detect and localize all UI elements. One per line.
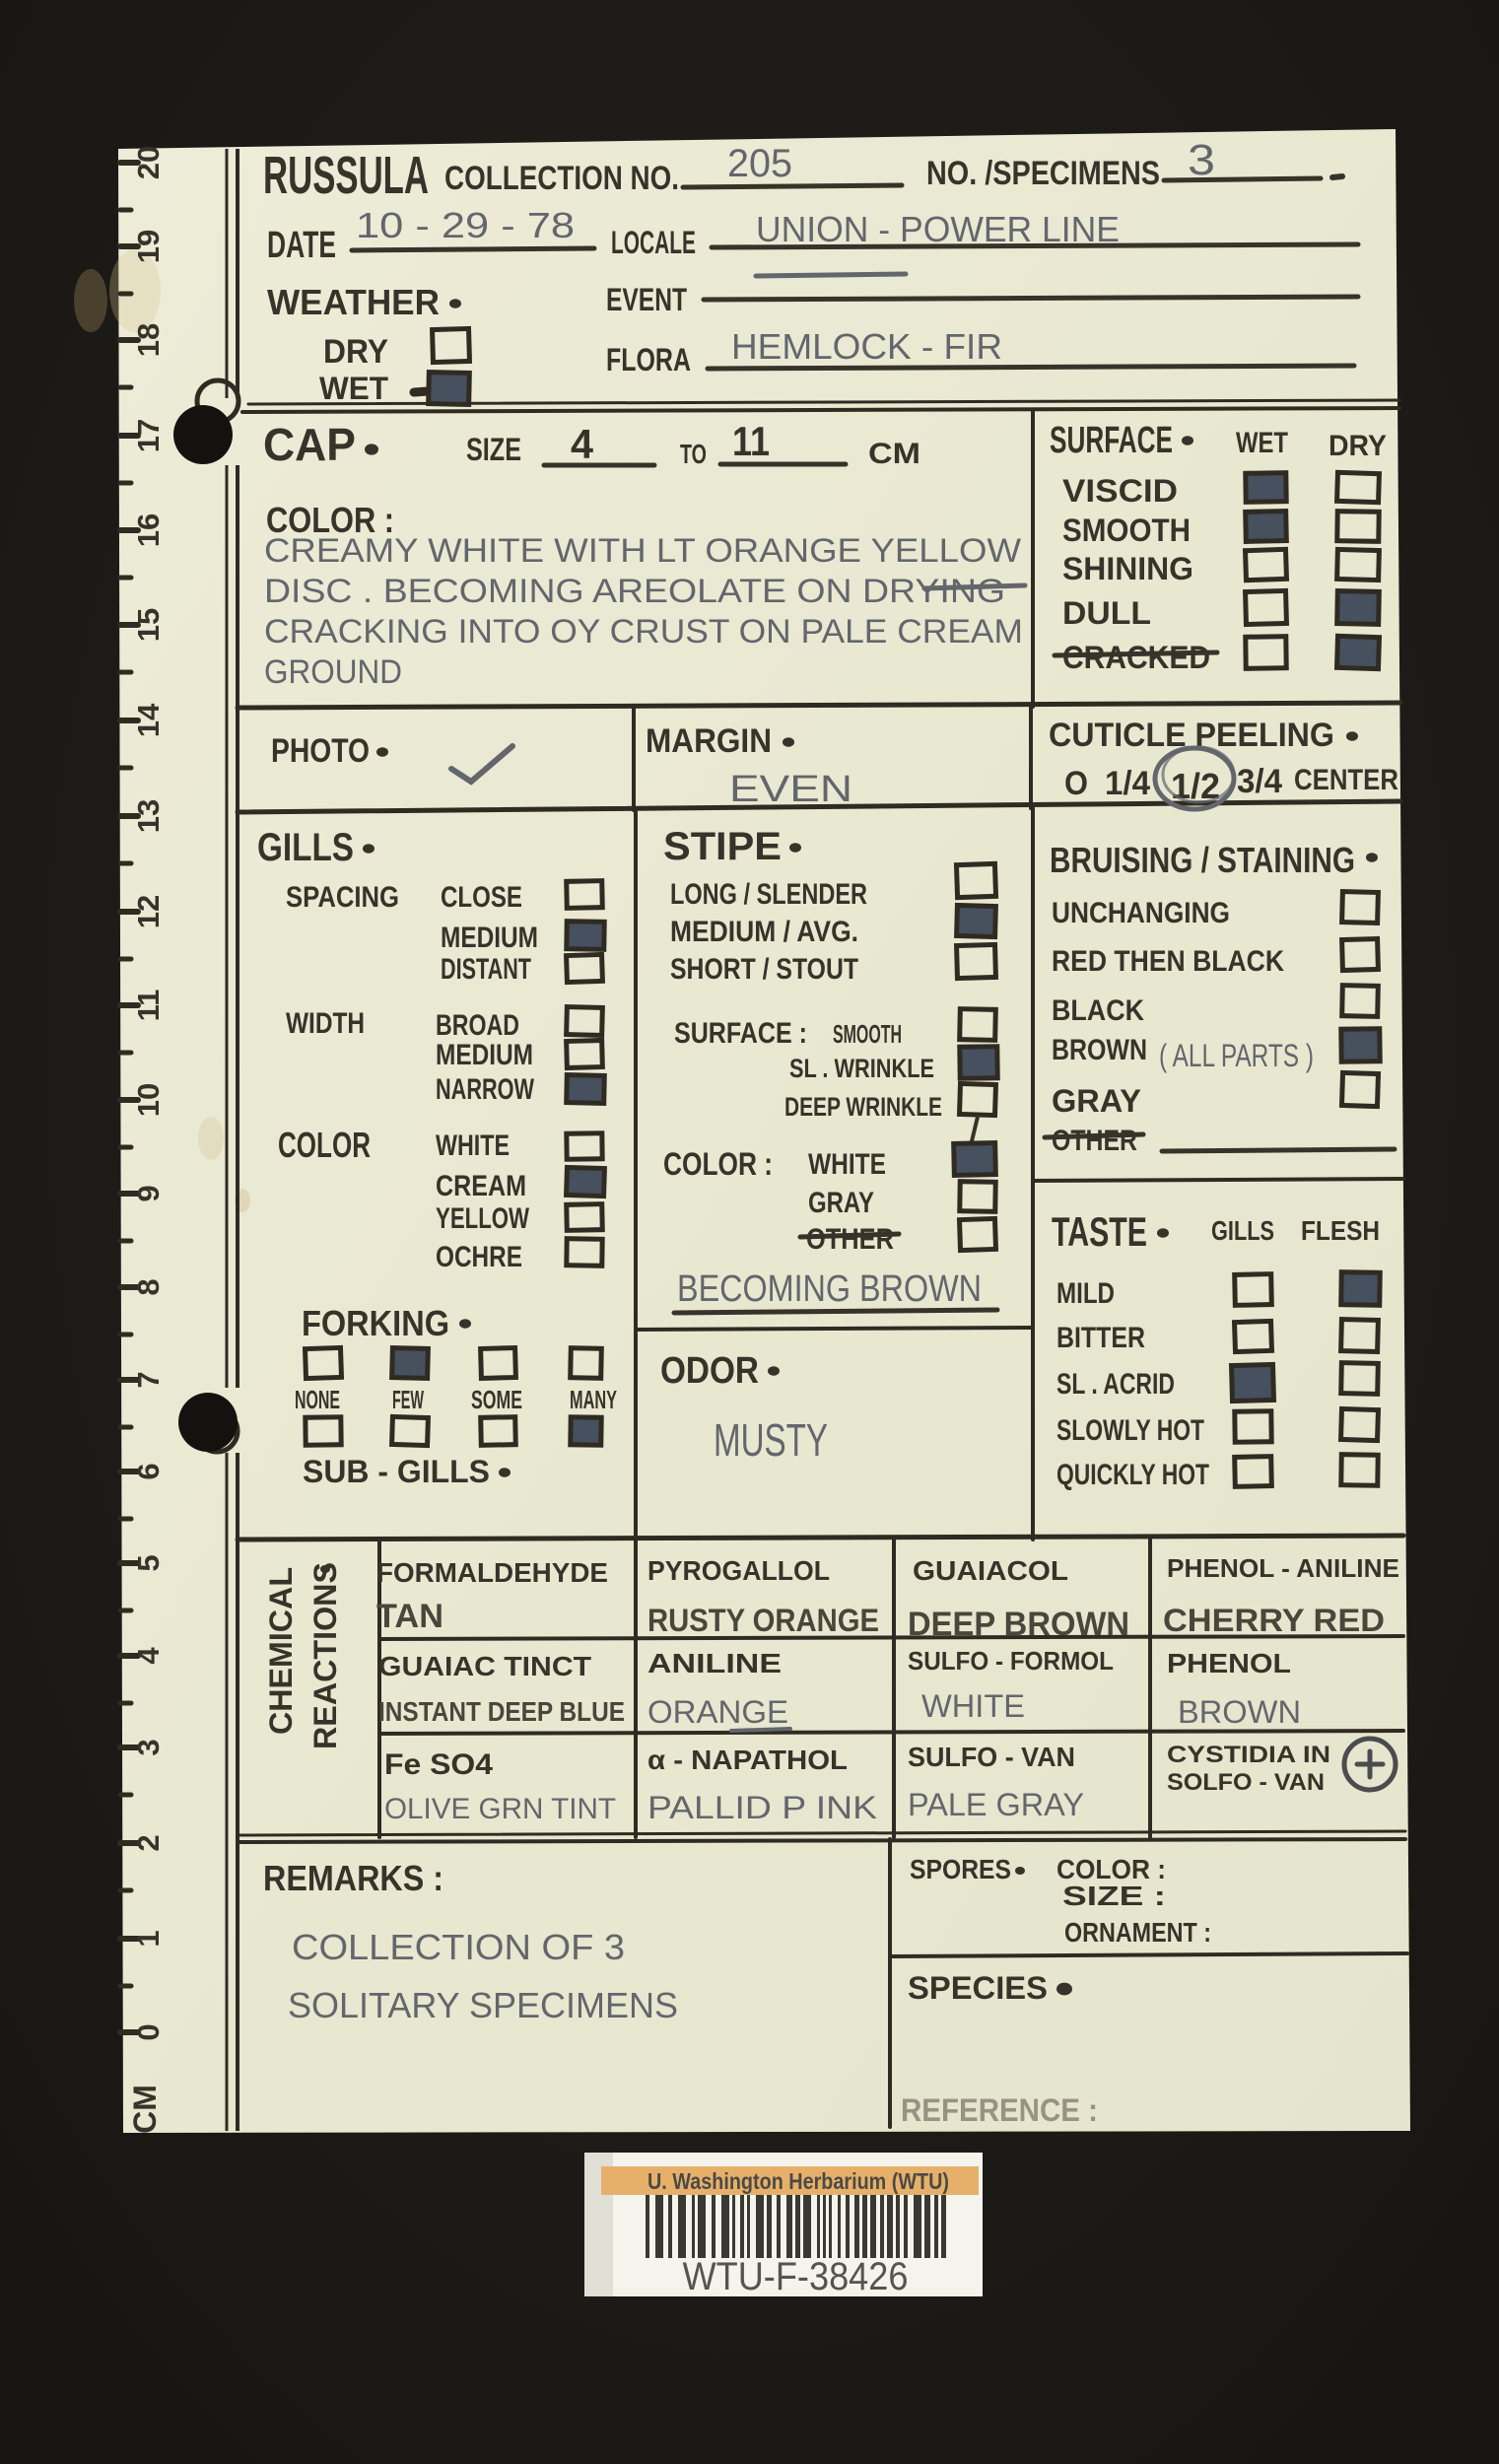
svg-text:BLACK: BLACK bbox=[1052, 994, 1144, 1027]
svg-text:BRUISING / STAINING: BRUISING / STAINING bbox=[1050, 840, 1355, 880]
svg-text:PHENOL: PHENOL bbox=[1167, 1648, 1291, 1678]
svg-text:SOME: SOME bbox=[471, 1385, 522, 1414]
svg-text:1/4: 1/4 bbox=[1105, 765, 1150, 802]
svg-text:ORANGE: ORANGE bbox=[647, 1694, 788, 1730]
svg-text:PHENOL - ANILINE: PHENOL - ANILINE bbox=[1167, 1553, 1399, 1583]
svg-text:EVEN: EVEN bbox=[729, 769, 852, 810]
svg-text:WET: WET bbox=[1236, 427, 1288, 459]
svg-text:MILD: MILD bbox=[1056, 1277, 1115, 1310]
svg-text:GRAY: GRAY bbox=[1052, 1083, 1141, 1119]
svg-text:SULFO - FORMOL: SULFO - FORMOL bbox=[908, 1646, 1114, 1676]
svg-text:DISTANT: DISTANT bbox=[441, 953, 531, 986]
svg-text:O: O bbox=[1064, 765, 1088, 802]
svg-text:DRY: DRY bbox=[1329, 430, 1387, 462]
svg-text:MEDIUM: MEDIUM bbox=[436, 1039, 533, 1071]
svg-text:12: 12 bbox=[131, 895, 166, 928]
svg-text:17: 17 bbox=[131, 419, 166, 452]
svg-text:2: 2 bbox=[131, 1834, 166, 1851]
svg-text:BECOMING BROWN: BECOMING BROWN bbox=[677, 1268, 982, 1310]
svg-text:OLIVE GRN TINT: OLIVE GRN TINT bbox=[384, 1793, 616, 1825]
svg-text:SPECIES: SPECIES bbox=[908, 1970, 1048, 2006]
svg-text:GUAIACOL: GUAIACOL bbox=[913, 1555, 1068, 1586]
svg-text:SIZE: SIZE bbox=[466, 432, 521, 467]
svg-text:NO. /SPECIMENS: NO. /SPECIMENS bbox=[926, 155, 1160, 192]
svg-text:16: 16 bbox=[131, 513, 166, 547]
svg-text:ANILINE: ANILINE bbox=[647, 1648, 782, 1678]
svg-text:SOLITARY SPECIMENS: SOLITARY SPECIMENS bbox=[288, 1985, 678, 2025]
svg-text:NARROW: NARROW bbox=[436, 1073, 534, 1106]
svg-text:SPORES: SPORES bbox=[910, 1854, 1011, 1884]
svg-text:CHEMICAL: CHEMICAL bbox=[263, 1567, 299, 1735]
svg-text:WIDTH: WIDTH bbox=[286, 1007, 365, 1040]
svg-text:5: 5 bbox=[131, 1554, 166, 1571]
svg-text:ORNAMENT :: ORNAMENT : bbox=[1064, 1917, 1211, 1948]
svg-text:3: 3 bbox=[131, 1739, 166, 1755]
svg-text:CHERRY RED: CHERRY RED bbox=[1163, 1603, 1385, 1638]
svg-text:SPACING: SPACING bbox=[286, 881, 399, 914]
svg-text:SUB - GILLS: SUB - GILLS bbox=[303, 1454, 490, 1489]
svg-text:3/4: 3/4 bbox=[1237, 763, 1282, 800]
svg-text:GILLS: GILLS bbox=[1211, 1215, 1274, 1246]
svg-text:DRY: DRY bbox=[323, 333, 388, 371]
svg-text:RUSSULA: RUSSULA bbox=[263, 146, 429, 205]
svg-text:4: 4 bbox=[131, 1647, 166, 1665]
svg-text:3: 3 bbox=[1188, 136, 1215, 184]
svg-text:8: 8 bbox=[131, 1278, 166, 1295]
svg-text:CM: CM bbox=[127, 2085, 163, 2134]
svg-text:( ALL PARTS ): ( ALL PARTS ) bbox=[1159, 1038, 1314, 1073]
svg-text:GRAY: GRAY bbox=[808, 1187, 874, 1219]
svg-text:GUAIAC TINCT: GUAIAC TINCT bbox=[378, 1651, 591, 1681]
svg-text:U. Washington Herbarium (WTU): U. Washington Herbarium (WTU) bbox=[647, 2168, 949, 2194]
svg-text:20: 20 bbox=[131, 146, 166, 179]
svg-text:COLOR :: COLOR : bbox=[663, 1146, 773, 1182]
svg-text:SL . WRINKLE: SL . WRINKLE bbox=[789, 1054, 934, 1083]
svg-text:15: 15 bbox=[131, 608, 166, 642]
svg-text:SURFACE: SURFACE bbox=[1050, 420, 1173, 461]
svg-text:1: 1 bbox=[131, 1930, 166, 1947]
svg-text:COLOR: COLOR bbox=[278, 1125, 371, 1165]
svg-text:MANY: MANY bbox=[570, 1385, 617, 1414]
svg-text:CLOSE: CLOSE bbox=[441, 881, 522, 914]
svg-text:0: 0 bbox=[131, 2023, 166, 2040]
svg-text:MARGIN: MARGIN bbox=[646, 722, 772, 760]
svg-text:CREAM: CREAM bbox=[436, 1170, 526, 1202]
svg-text:COLLECTION OF 3: COLLECTION OF 3 bbox=[292, 1927, 625, 1967]
svg-text:CREAMY WHITE WITH LT ORANGE YE: CREAMY WHITE WITH LT ORANGE YELLOW bbox=[264, 532, 1021, 570]
svg-text:WHITE: WHITE bbox=[436, 1129, 510, 1162]
svg-text:PHOTO: PHOTO bbox=[271, 732, 370, 770]
svg-text:TASTE: TASTE bbox=[1052, 1208, 1147, 1255]
svg-text:CAP: CAP bbox=[263, 419, 356, 470]
svg-text:7: 7 bbox=[131, 1371, 166, 1388]
svg-text:MEDIUM: MEDIUM bbox=[441, 922, 538, 954]
svg-text:SOLFO - VAN: SOLFO - VAN bbox=[1167, 1769, 1325, 1796]
svg-text:FEW: FEW bbox=[392, 1385, 424, 1414]
svg-text:GROUND: GROUND bbox=[264, 653, 402, 691]
svg-text:BROWN: BROWN bbox=[1178, 1694, 1301, 1730]
svg-text:DISC . BECOMING AREOLATE ON D: DISC . BECOMING AREOLATE ON DRYING bbox=[264, 573, 1005, 610]
svg-text:LOCALE: LOCALE bbox=[611, 225, 696, 260]
svg-text:CM: CM bbox=[868, 438, 920, 470]
svg-text:4: 4 bbox=[571, 421, 594, 467]
svg-text:WET: WET bbox=[319, 371, 388, 406]
svg-text:PALE GRAY: PALE GRAY bbox=[908, 1787, 1084, 1822]
svg-text:CENTER: CENTER bbox=[1294, 764, 1398, 796]
svg-text:RED THEN BLACK: RED THEN BLACK bbox=[1052, 945, 1284, 978]
svg-text:OTHER: OTHER bbox=[806, 1223, 894, 1256]
svg-text:WEATHER: WEATHER bbox=[267, 282, 440, 322]
svg-text:DATE: DATE bbox=[267, 225, 336, 266]
svg-text:PALLID P INK: PALLID P INK bbox=[647, 1790, 877, 1825]
svg-text:SMOOTH: SMOOTH bbox=[1062, 513, 1191, 548]
svg-text:FLESH: FLESH bbox=[1301, 1215, 1380, 1246]
svg-text:NONE: NONE bbox=[295, 1385, 340, 1414]
svg-text:9: 9 bbox=[131, 1185, 166, 1201]
svg-text:10 - 29 - 78: 10 - 29 - 78 bbox=[356, 205, 575, 245]
svg-text:HEMLOCK - FIR: HEMLOCK - FIR bbox=[731, 326, 1002, 367]
svg-text:GILLS: GILLS bbox=[257, 826, 354, 869]
svg-text:13: 13 bbox=[131, 799, 166, 833]
svg-text:SULFO - VAN: SULFO - VAN bbox=[908, 1742, 1075, 1772]
svg-text:REFERENCE :: REFERENCE : bbox=[901, 2092, 1098, 2128]
svg-text:INSTANT DEEP BLUE: INSTANT DEEP BLUE bbox=[378, 1696, 625, 1727]
svg-text:SHINING: SHINING bbox=[1062, 551, 1193, 586]
svg-text:OTHER: OTHER bbox=[1052, 1125, 1137, 1157]
svg-text:DEEP WRINKLE: DEEP WRINKLE bbox=[784, 1092, 942, 1122]
svg-text:REMARKS :: REMARKS : bbox=[263, 1858, 443, 1898]
svg-text:MUSTY: MUSTY bbox=[714, 1414, 828, 1466]
svg-text:YELLOW: YELLOW bbox=[436, 1202, 530, 1235]
svg-text:α - NAPATHOL: α - NAPATHOL bbox=[647, 1745, 848, 1775]
svg-text:DEEP BROWN: DEEP BROWN bbox=[908, 1606, 1129, 1643]
svg-text:TAN: TAN bbox=[376, 1598, 443, 1635]
svg-text:UNCHANGING: UNCHANGING bbox=[1052, 897, 1230, 929]
svg-text:BROWN: BROWN bbox=[1052, 1034, 1147, 1066]
svg-text:CYSTIDIA IN: CYSTIDIA IN bbox=[1167, 1742, 1330, 1768]
svg-text:BITTER: BITTER bbox=[1056, 1322, 1145, 1354]
svg-text:10: 10 bbox=[131, 1083, 166, 1117]
svg-text:SMOOTH: SMOOTH bbox=[833, 1019, 902, 1049]
svg-text:STIPE: STIPE bbox=[663, 825, 782, 868]
svg-text:6: 6 bbox=[131, 1463, 166, 1479]
svg-text:SLOWLY HOT: SLOWLY HOT bbox=[1056, 1414, 1204, 1447]
svg-text:205: 205 bbox=[727, 142, 792, 185]
svg-text:ODOR: ODOR bbox=[660, 1350, 759, 1392]
svg-text:FLORA: FLORA bbox=[606, 342, 691, 377]
svg-text:FORMALDEHYDE: FORMALDEHYDE bbox=[376, 1557, 608, 1588]
svg-text:QUICKLY HOT: QUICKLY HOT bbox=[1056, 1459, 1209, 1491]
svg-text:BROAD: BROAD bbox=[436, 1009, 519, 1042]
svg-text:PYROGALLOL: PYROGALLOL bbox=[647, 1555, 830, 1586]
svg-text:11: 11 bbox=[131, 990, 166, 1022]
svg-text:COLLECTION NO.: COLLECTION NO. bbox=[444, 160, 679, 197]
svg-text:VISCID: VISCID bbox=[1062, 473, 1178, 509]
svg-text:LONG / SLENDER: LONG / SLENDER bbox=[670, 878, 867, 911]
svg-text:UNION - POWER LINE: UNION - POWER LINE bbox=[756, 209, 1120, 249]
svg-text:18: 18 bbox=[131, 323, 166, 357]
svg-text:WHITE: WHITE bbox=[808, 1148, 886, 1181]
svg-text:Fe SO4: Fe SO4 bbox=[384, 1748, 493, 1781]
svg-text:CRACKING INTO OY CRUST ON PALE: CRACKING INTO OY CRUST ON PALE CREAM bbox=[264, 613, 1023, 650]
svg-text:WHITE: WHITE bbox=[921, 1688, 1025, 1724]
svg-text:FORKING: FORKING bbox=[302, 1303, 449, 1343]
svg-text:RUSTY ORANGE: RUSTY ORANGE bbox=[647, 1603, 879, 1638]
svg-text:TO: TO bbox=[680, 439, 707, 469]
svg-text:SL . ACRID: SL . ACRID bbox=[1056, 1368, 1175, 1401]
svg-text:WTU-F-38426: WTU-F-38426 bbox=[683, 2255, 909, 2298]
svg-text:19: 19 bbox=[131, 230, 166, 263]
svg-text:11: 11 bbox=[732, 418, 770, 464]
svg-text:OCHRE: OCHRE bbox=[436, 1241, 522, 1273]
svg-text:MEDIUM / AVG.: MEDIUM / AVG. bbox=[670, 916, 858, 948]
svg-text:SURFACE :: SURFACE : bbox=[674, 1017, 807, 1050]
svg-text:CRACKED: CRACKED bbox=[1062, 640, 1210, 675]
svg-text:EVENT: EVENT bbox=[606, 282, 687, 317]
svg-text:14: 14 bbox=[131, 703, 166, 737]
svg-text:DULL: DULL bbox=[1062, 595, 1151, 631]
svg-text:SIZE :: SIZE : bbox=[1062, 1881, 1166, 1911]
svg-text:REACTIONS: REACTIONS bbox=[307, 1562, 343, 1749]
svg-text:SHORT / STOUT: SHORT / STOUT bbox=[670, 953, 858, 986]
